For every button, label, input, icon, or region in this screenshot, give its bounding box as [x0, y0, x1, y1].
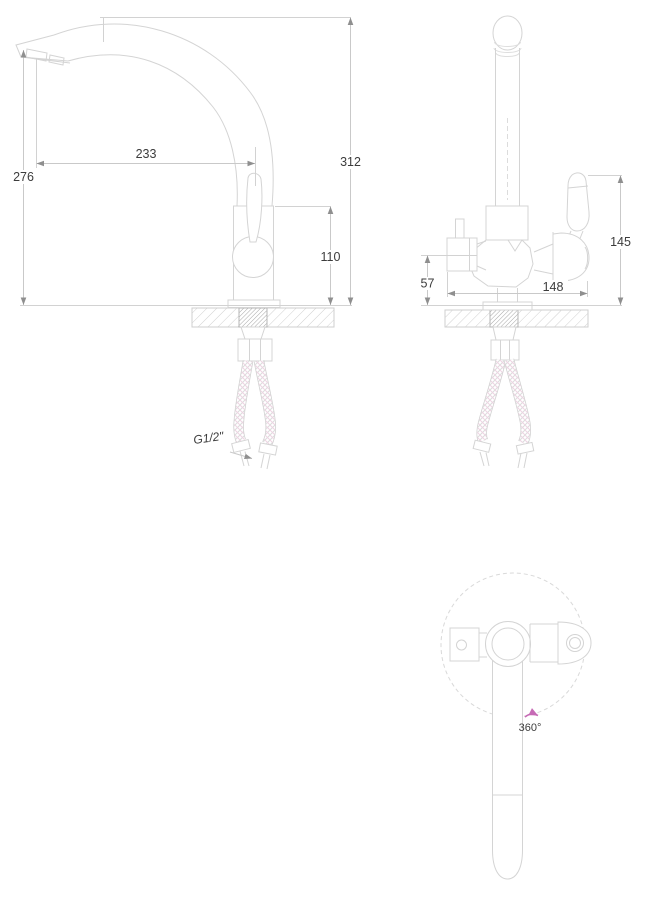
- dim-label-spout-reach: 233: [136, 147, 157, 161]
- hose-connector-right: [259, 443, 277, 455]
- thread-size-label: G1/2": [192, 429, 225, 447]
- connector-studs: [240, 451, 270, 469]
- filter-valve-top: [450, 628, 479, 661]
- mounting-nut: [238, 339, 272, 361]
- dim-label-spout-outlet-height: 276: [13, 170, 34, 184]
- ball-joint: [233, 237, 274, 278]
- top-view: 360°: [441, 573, 591, 879]
- cartridge-cap: [553, 233, 589, 281]
- dim-label-body-height: 110: [321, 250, 341, 264]
- rotation-label: 360°: [519, 722, 542, 734]
- front-view: [16, 24, 334, 469]
- hose-connector-left: [232, 440, 251, 453]
- supply-hoses: [232, 361, 278, 469]
- mixer-body: [468, 240, 533, 287]
- body-upper-block: [486, 206, 528, 240]
- cartridge-neck-top: [530, 624, 558, 662]
- connector-studs-side: [480, 452, 527, 468]
- technical-drawing-page: 276 233 312 110 G1/2": [0, 0, 666, 906]
- cartridge-cap-top: [558, 622, 591, 664]
- hose-connector-right-side: [516, 442, 533, 454]
- spout-inner-curve: [68, 55, 237, 206]
- spout-tip: [16, 35, 70, 63]
- front-view-dimensions: 276 233 312 110 G1/2": [10, 18, 364, 459]
- supply-hose-right: [259, 361, 271, 444]
- dim-label-overall-width: 148: [543, 280, 564, 294]
- rotation-arrow-icon: [525, 714, 538, 717]
- aerator-rings: [494, 42, 521, 57]
- mounting-nut-side: [491, 340, 519, 360]
- supply-hoses-side: [473, 360, 534, 468]
- mounting-thread-side: [490, 310, 518, 327]
- hose-connector-left-side: [473, 440, 491, 452]
- filter-valve-body: [447, 238, 477, 271]
- spout-top-view: [493, 650, 523, 879]
- dim-label-filter-outlet-height: 57: [421, 277, 435, 291]
- mounting-thread: [239, 308, 267, 327]
- aerator-detail: [26, 49, 64, 65]
- base-flange: [228, 300, 280, 308]
- filter-valve-stem: [456, 219, 465, 238]
- dim-label-lever-height: 145: [610, 235, 631, 249]
- side-view: [445, 16, 589, 468]
- lever-handle: [567, 173, 589, 231]
- base-stem: [498, 288, 518, 302]
- shank-taper: [241, 327, 265, 339]
- shank-taper-side: [493, 327, 516, 340]
- faucet-drawing-canvas: 276 233 312 110 G1/2": [0, 0, 666, 906]
- dim-label-overall-height: 312: [340, 155, 361, 169]
- spout-outer-curve: [54, 24, 273, 206]
